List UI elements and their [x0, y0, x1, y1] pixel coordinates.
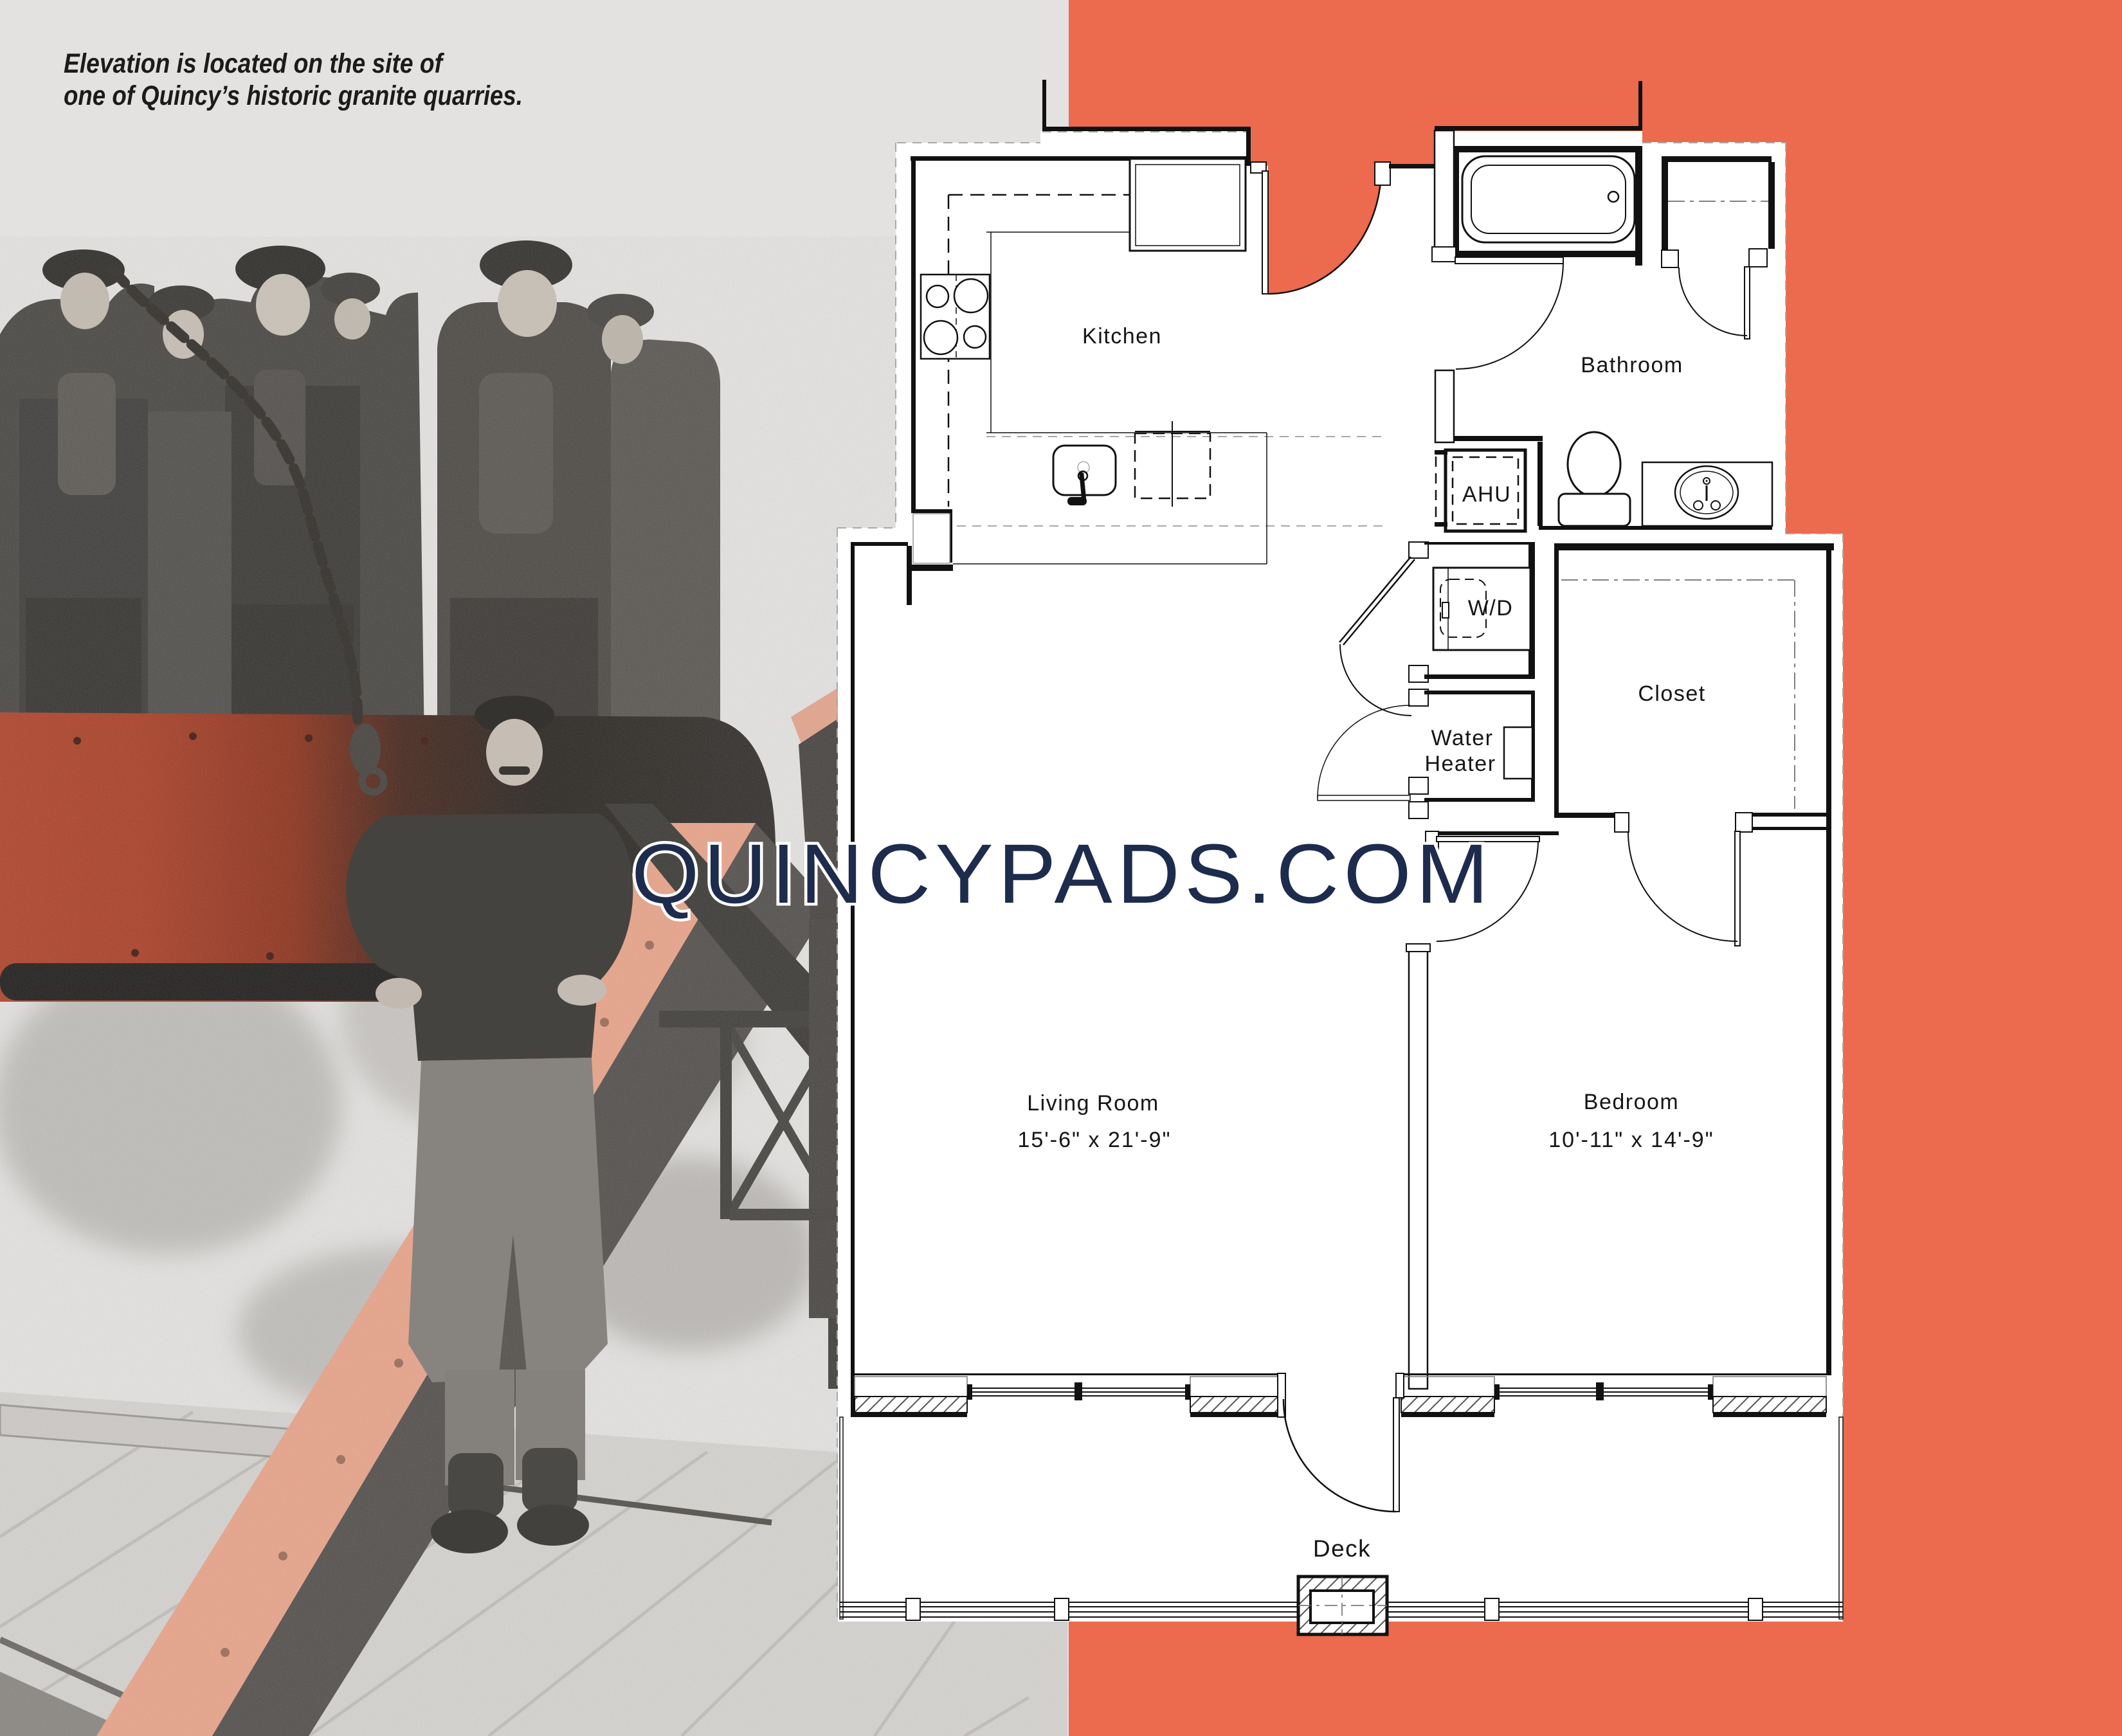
svg-text:Closet: Closet: [1638, 682, 1705, 706]
svg-text:15'-6" x 21'-9": 15'-6" x 21'-9": [1017, 1128, 1171, 1152]
svg-text:Elevation is located on the si: Elevation is located on the site of: [64, 48, 444, 79]
svg-text:10'-11" x 14'-9": 10'-11" x 14'-9": [1548, 1128, 1714, 1152]
svg-text:Kitchen: Kitchen: [1082, 324, 1162, 348]
svg-text:Heater: Heater: [1424, 752, 1496, 776]
svg-text:Water: Water: [1431, 726, 1494, 750]
svg-text:QUINCYPADS.COM: QUINCYPADS.COM: [631, 826, 1493, 921]
svg-text:Bedroom: Bedroom: [1584, 1090, 1679, 1114]
svg-text:AHU: AHU: [1462, 482, 1511, 507]
svg-text:W/D: W/D: [1468, 596, 1514, 620]
svg-text:one of Quincy’s historic grani: one of Quincy’s historic granite quarrie…: [64, 80, 523, 111]
svg-text:Bathroom: Bathroom: [1581, 353, 1683, 377]
svg-text:Deck: Deck: [1313, 1535, 1371, 1562]
svg-text:Living Room: Living Room: [1027, 1091, 1159, 1116]
